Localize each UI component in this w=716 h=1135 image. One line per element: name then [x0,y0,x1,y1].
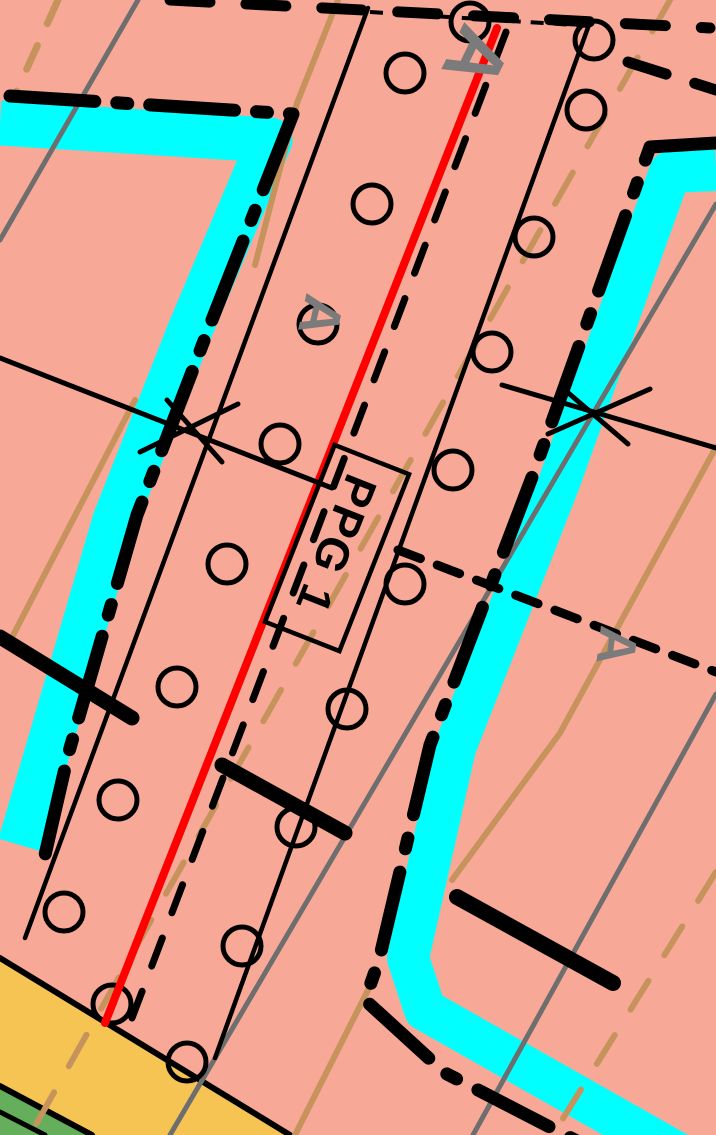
map-svg: PPG 1AAA [0,0,716,1135]
map-canvas[interactable]: PPG 1AAA [0,0,716,1135]
section-marker-a-right: A [584,623,648,669]
